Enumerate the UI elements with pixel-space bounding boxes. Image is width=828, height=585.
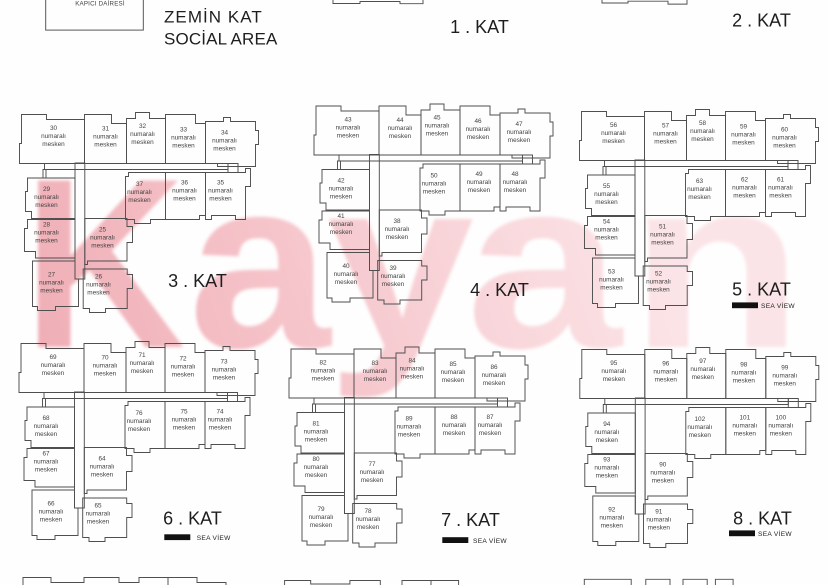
svg-text:numaralı: numaralı (482, 372, 507, 379)
svg-text:numaralı: numaralı (594, 226, 619, 233)
svg-text:65: 65 (94, 503, 102, 510)
svg-text:1 . KAT: 1 . KAT (450, 17, 509, 37)
svg-text:SOCİAL AREA: SOCİAL AREA (164, 30, 278, 49)
svg-text:63: 63 (696, 178, 704, 185)
svg-text:32: 32 (139, 123, 147, 130)
svg-text:5 . KAT: 5 . KAT (732, 280, 791, 300)
svg-text:numaralı: numaralı (90, 234, 115, 241)
svg-text:mesken: mesken (733, 192, 756, 199)
svg-text:numaralı: numaralı (441, 369, 466, 376)
svg-text:mesken: mesken (468, 187, 491, 194)
svg-text:mesken: mesken (87, 518, 110, 525)
svg-text:numaralı: numaralı (687, 424, 712, 431)
svg-text:numaralı: numaralı (34, 229, 59, 236)
svg-text:numaralı: numaralı (503, 179, 528, 186)
svg-text:73: 73 (220, 359, 228, 366)
svg-text:28: 28 (43, 222, 51, 229)
svg-text:numaralı: numaralı (594, 429, 619, 436)
svg-text:91: 91 (655, 509, 663, 516)
svg-text:mesken: mesken (35, 237, 58, 244)
svg-text:numaralı: numaralı (690, 128, 715, 135)
svg-text:81: 81 (312, 421, 320, 428)
svg-text:numaralı: numaralı (360, 469, 385, 476)
svg-text:numaralı: numaralı (127, 189, 152, 196)
svg-text:mesken: mesken (94, 370, 117, 377)
svg-text:82: 82 (319, 360, 327, 367)
svg-text:numaralı: numaralı (400, 365, 425, 372)
svg-text:89: 89 (405, 416, 413, 423)
svg-text:mesken: mesken (648, 524, 671, 531)
svg-text:numaralı: numaralı (650, 231, 675, 238)
svg-text:25: 25 (99, 227, 107, 234)
svg-text:mesken: mesken (173, 424, 196, 431)
svg-text:mesken: mesken (91, 242, 114, 249)
svg-text:mesken: mesken (655, 376, 678, 383)
svg-text:mesken: mesken (601, 522, 624, 529)
svg-text:mesken: mesken (654, 138, 677, 145)
svg-text:mesken: mesken (330, 229, 353, 236)
svg-text:numaralı: numaralı (422, 180, 447, 187)
svg-text:85: 85 (449, 361, 457, 368)
svg-text:35: 35 (217, 180, 225, 187)
svg-text:numaralı: numaralı (768, 422, 793, 429)
svg-text:67: 67 (42, 451, 50, 458)
svg-text:mesken: mesken (128, 426, 151, 433)
svg-text:numaralı: numaralı (646, 516, 671, 523)
svg-text:2 . KAT: 2 . KAT (732, 11, 791, 31)
svg-text:mesken: mesken (389, 133, 412, 140)
svg-text:mesken: mesken (312, 375, 335, 382)
svg-text:38: 38 (393, 218, 401, 225)
svg-text:97: 97 (699, 358, 707, 365)
svg-text:mesken: mesken (337, 132, 360, 139)
svg-text:mesken: mesken (40, 516, 63, 523)
svg-text:numaralı: numaralı (599, 276, 624, 283)
svg-text:numaralı: numaralı (86, 510, 111, 517)
svg-text:numaralı: numaralı (385, 226, 410, 233)
svg-text:39: 39 (389, 265, 397, 272)
svg-text:100: 100 (775, 415, 786, 422)
svg-text:mesken: mesken (35, 202, 58, 209)
svg-text:mesken: mesken (401, 373, 424, 380)
svg-text:numaralı: numaralı (690, 366, 715, 373)
svg-text:mesken: mesken (423, 188, 446, 195)
svg-text:numaralı: numaralı (731, 131, 756, 138)
svg-text:45: 45 (433, 115, 441, 122)
svg-text:60: 60 (781, 127, 789, 134)
svg-text:49: 49 (475, 171, 483, 178)
svg-text:numaralı: numaralı (208, 416, 233, 423)
svg-text:mesken: mesken (443, 430, 466, 437)
svg-text:101: 101 (739, 415, 750, 422)
svg-text:mesken: mesken (357, 524, 380, 531)
svg-text:numaralı: numaralı (309, 514, 334, 521)
svg-text:numaralı: numaralı (329, 221, 354, 228)
svg-text:mesken: mesken (652, 477, 675, 484)
svg-text:mesken: mesken (734, 430, 757, 437)
svg-text:mesken: mesken (305, 472, 328, 479)
svg-text:numaralı: numaralı (212, 137, 237, 144)
svg-text:50: 50 (430, 173, 438, 180)
svg-text:mesken: mesken (647, 286, 670, 293)
svg-text:47: 47 (515, 121, 523, 128)
svg-text:numaralı: numaralı (363, 368, 388, 375)
svg-text:76: 76 (135, 410, 143, 417)
svg-text:numaralı: numaralı (127, 418, 152, 425)
svg-text:46: 46 (474, 118, 482, 125)
svg-text:57: 57 (662, 123, 670, 130)
svg-text:48: 48 (511, 171, 519, 178)
svg-text:mesken: mesken (131, 368, 154, 375)
svg-text:mesken: mesken (442, 377, 465, 384)
svg-text:numaralı: numaralı (212, 366, 237, 373)
svg-text:mesken: mesken (770, 430, 793, 437)
svg-text:59: 59 (740, 124, 748, 131)
svg-text:3 . KAT: 3 . KAT (168, 271, 227, 291)
svg-text:88: 88 (450, 414, 458, 421)
svg-text:mesken: mesken (398, 431, 421, 438)
svg-text:numaralı: numaralı (86, 281, 111, 288)
svg-text:33: 33 (180, 127, 188, 134)
svg-text:95: 95 (610, 360, 618, 367)
svg-text:102: 102 (694, 416, 705, 423)
svg-text:numaralı: numaralı (478, 422, 503, 429)
svg-text:numaralı: numaralı (388, 125, 413, 132)
svg-text:numaralı: numaralı (467, 179, 492, 186)
svg-text:mesken: mesken (40, 287, 63, 294)
svg-text:numaralı: numaralı (599, 514, 624, 521)
svg-text:numaralı: numaralı (41, 133, 66, 140)
svg-text:56: 56 (610, 122, 618, 129)
svg-text:29: 29 (43, 186, 51, 193)
svg-text:numaralı: numaralı (653, 368, 678, 375)
svg-text:numaralı: numaralı (442, 422, 467, 429)
svg-text:mesken: mesken (651, 239, 674, 246)
svg-text:99: 99 (781, 365, 789, 372)
svg-text:numaralı: numaralı (329, 185, 354, 192)
svg-text:51: 51 (659, 224, 667, 231)
svg-text:37: 37 (136, 181, 144, 188)
svg-text:mesken: mesken (305, 436, 328, 443)
svg-text:80: 80 (312, 456, 320, 463)
svg-text:26: 26 (95, 274, 103, 281)
svg-text:64: 64 (98, 456, 106, 463)
svg-text:numaralı: numaralı (130, 360, 155, 367)
svg-text:numaralı: numaralı (34, 194, 59, 201)
svg-text:numaralı: numaralı (601, 130, 626, 137)
svg-text:mesken: mesken (173, 195, 196, 202)
svg-text:74: 74 (216, 409, 224, 416)
svg-text:mesken: mesken (42, 141, 65, 148)
svg-text:68: 68 (42, 415, 50, 422)
svg-text:27: 27 (48, 272, 56, 279)
svg-text:72: 72 (179, 356, 187, 363)
svg-text:mesken: mesken (692, 374, 715, 381)
svg-text:numaralı: numaralı (34, 423, 59, 430)
svg-text:52: 52 (655, 271, 663, 278)
svg-text:numaralı: numaralı (311, 367, 336, 374)
svg-text:mesken: mesken (595, 199, 618, 206)
svg-text:75: 75 (180, 409, 188, 416)
svg-text:mesken: mesken (600, 284, 623, 291)
svg-text:SEA VİEW: SEA VİEW (758, 529, 792, 538)
svg-text:83: 83 (371, 360, 379, 367)
svg-text:58: 58 (699, 120, 707, 127)
svg-text:mesken: mesken (596, 472, 619, 479)
svg-text:numaralı: numaralı (171, 134, 196, 141)
svg-text:numaralı: numaralı (646, 278, 671, 285)
svg-text:mesken: mesken (35, 431, 58, 438)
svg-text:mesken: mesken (602, 138, 625, 145)
svg-text:mesken: mesken (479, 430, 502, 437)
svg-text:mesken: mesken (361, 477, 384, 484)
svg-text:ZEMİN KAT: ZEMİN KAT (164, 8, 263, 27)
svg-text:SEA VİEW: SEA VİEW (197, 533, 231, 542)
svg-text:69: 69 (49, 354, 57, 361)
svg-text:numaralı: numaralı (356, 516, 381, 523)
svg-text:mesken: mesken (382, 281, 405, 288)
svg-text:8 . KAT: 8 . KAT (733, 509, 792, 529)
svg-text:mesken: mesken (733, 377, 756, 384)
svg-text:numaralı: numaralı (601, 368, 626, 375)
svg-text:mesken: mesken (335, 279, 358, 286)
svg-text:numaralı: numaralı (93, 133, 118, 140)
svg-text:mesken: mesken (94, 141, 117, 148)
svg-text:96: 96 (662, 361, 670, 368)
svg-text:numaralı: numaralı (594, 191, 619, 198)
svg-text:numaralı: numaralı (768, 184, 793, 191)
svg-text:53: 53 (608, 269, 616, 276)
svg-text:mesken: mesken (508, 137, 531, 144)
svg-text:84: 84 (408, 358, 416, 365)
svg-text:mesken: mesken (364, 376, 387, 383)
svg-text:numaralı: numaralı (772, 134, 797, 141)
svg-text:98: 98 (740, 362, 748, 369)
svg-text:30: 30 (50, 125, 58, 132)
svg-text:93: 93 (603, 457, 611, 464)
svg-text:6 . KAT: 6 . KAT (163, 509, 222, 529)
svg-text:mesken: mesken (603, 376, 626, 383)
svg-text:numaralı: numaralı (732, 184, 757, 191)
svg-text:66: 66 (47, 501, 55, 508)
svg-text:79: 79 (317, 506, 325, 513)
svg-text:mesken: mesken (87, 289, 110, 296)
svg-text:mesken: mesken (131, 139, 154, 146)
svg-text:numaralı: numaralı (171, 363, 196, 370)
svg-text:mesken: mesken (691, 136, 714, 143)
svg-text:mesken: mesken (213, 145, 236, 152)
svg-text:mesken: mesken (172, 142, 195, 149)
svg-text:mesken: mesken (128, 197, 151, 204)
svg-text:mesken: mesken (386, 234, 409, 241)
svg-text:mesken: mesken (774, 380, 797, 387)
svg-text:numaralı: numaralı (130, 131, 155, 138)
svg-text:34: 34 (221, 130, 229, 137)
svg-text:90: 90 (659, 462, 667, 469)
svg-text:mesken: mesken (213, 374, 236, 381)
svg-text:4 . KAT: 4 . KAT (470, 280, 529, 300)
svg-text:42: 42 (337, 178, 345, 185)
svg-text:mesken: mesken (596, 437, 619, 444)
svg-text:61: 61 (777, 177, 785, 184)
svg-text:SEA VİEW: SEA VİEW (473, 536, 507, 545)
svg-text:mesken: mesken (504, 187, 527, 194)
svg-text:mesken: mesken (310, 522, 333, 529)
svg-text:numaralı: numaralı (304, 428, 329, 435)
svg-text:41: 41 (337, 213, 345, 220)
svg-text:numaralı: numaralı (650, 469, 675, 476)
svg-text:numaralı: numaralı (90, 463, 115, 470)
svg-text:numaralı: numaralı (594, 464, 619, 471)
svg-text:mesken: mesken (773, 142, 796, 149)
svg-text:92: 92 (608, 507, 616, 514)
svg-text:numaralı: numaralı (172, 416, 197, 423)
svg-text:numaralı: numaralı (772, 372, 797, 379)
svg-text:SEA VİEW: SEA VİEW (761, 301, 795, 310)
svg-text:numaralı: numaralı (397, 423, 422, 430)
svg-text:62: 62 (741, 177, 749, 184)
svg-text:mesken: mesken (688, 194, 711, 201)
svg-text:mesken: mesken (91, 471, 114, 478)
svg-text:40: 40 (342, 263, 350, 270)
svg-text:55: 55 (603, 183, 611, 190)
svg-text:44: 44 (396, 117, 404, 124)
svg-text:numaralı: numaralı (466, 126, 491, 133)
svg-text:71: 71 (138, 352, 146, 359)
svg-text:77: 77 (368, 461, 376, 468)
svg-text:mesken: mesken (330, 193, 353, 200)
svg-text:94: 94 (603, 421, 611, 428)
svg-text:numaralı: numaralı (381, 273, 406, 280)
svg-text:mesken: mesken (769, 192, 792, 199)
svg-text:78: 78 (364, 508, 372, 515)
svg-text:numaralı: numaralı (507, 129, 532, 136)
svg-text:numaralı: numaralı (653, 130, 678, 137)
svg-text:mesken: mesken (209, 195, 232, 202)
svg-text:numaralı: numaralı (93, 362, 118, 369)
svg-text:31: 31 (102, 126, 110, 133)
svg-text:numaralı: numaralı (687, 186, 712, 193)
svg-text:numaralı: numaralı (208, 187, 233, 194)
svg-text:mesken: mesken (42, 370, 65, 377)
svg-text:numaralı: numaralı (41, 362, 66, 369)
svg-text:70: 70 (101, 355, 109, 362)
svg-text:mesken: mesken (35, 466, 58, 473)
svg-text:numaralı: numaralı (304, 464, 329, 471)
svg-text:mesken: mesken (483, 380, 506, 387)
svg-text:7 . KAT: 7 . KAT (441, 510, 500, 530)
svg-text:numaralı: numaralı (731, 369, 756, 376)
svg-text:numaralı: numaralı (34, 458, 59, 465)
svg-text:54: 54 (603, 219, 611, 226)
svg-text:numaralı: numaralı (39, 279, 64, 286)
svg-text:mesken: mesken (689, 432, 712, 439)
svg-text:mesken: mesken (172, 371, 195, 378)
svg-text:mesken: mesken (426, 130, 449, 137)
svg-text:mesken: mesken (209, 424, 232, 431)
svg-text:numaralı: numaralı (425, 122, 450, 129)
svg-text:numaralı: numaralı (336, 124, 361, 131)
svg-text:86: 86 (490, 364, 498, 371)
svg-text:numaralı: numaralı (172, 187, 197, 194)
svg-text:numaralı: numaralı (39, 508, 64, 515)
svg-text:mesken: mesken (595, 234, 618, 241)
svg-text:36: 36 (181, 180, 189, 187)
svg-text:numaralı: numaralı (732, 422, 757, 429)
svg-text:KAPICI DAİRESİ: KAPICI DAİRESİ (75, 1, 125, 8)
svg-text:87: 87 (486, 414, 494, 421)
svg-text:mesken: mesken (732, 139, 755, 146)
svg-text:numaralı: numaralı (334, 271, 359, 278)
svg-text:mesken: mesken (467, 134, 490, 141)
svg-text:43: 43 (344, 117, 352, 124)
